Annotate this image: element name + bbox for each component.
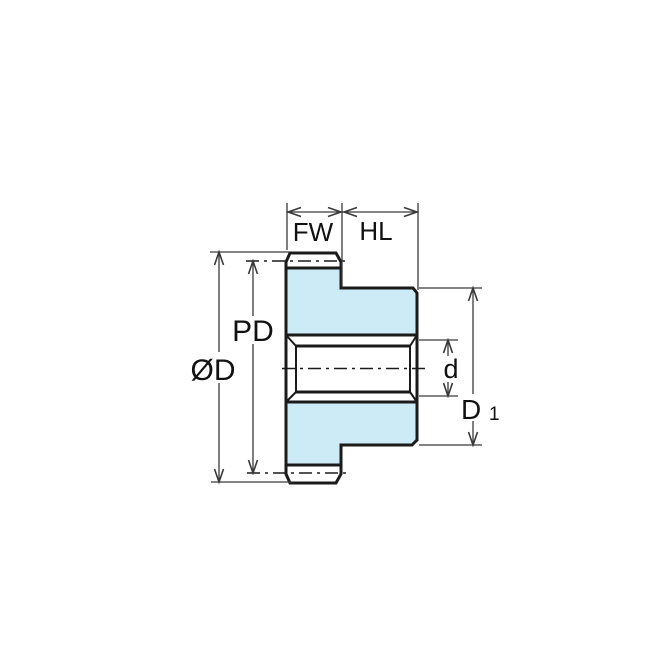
gear-body-lower-section: [286, 402, 417, 465]
diagram-svg: FW HL PD ØD d D 1: [0, 0, 670, 670]
label-hub-diameter: D 1: [461, 394, 500, 425]
gear-dimension-diagram: FW HL PD ØD d D 1: [0, 0, 670, 670]
label-face-width: FW: [293, 217, 334, 247]
label-bore-diameter: d: [443, 354, 458, 384]
label-outside-diameter: ØD: [191, 354, 236, 387]
gear-tooth-bottom: [286, 465, 341, 483]
gear-body-upper-section: [286, 268, 417, 335]
label-pitch-diameter: PD: [232, 315, 274, 348]
label-hub-diameter-main: D: [461, 394, 481, 425]
label-hub-length: HL: [359, 216, 392, 246]
label-hub-diameter-subscript: 1: [489, 404, 500, 425]
